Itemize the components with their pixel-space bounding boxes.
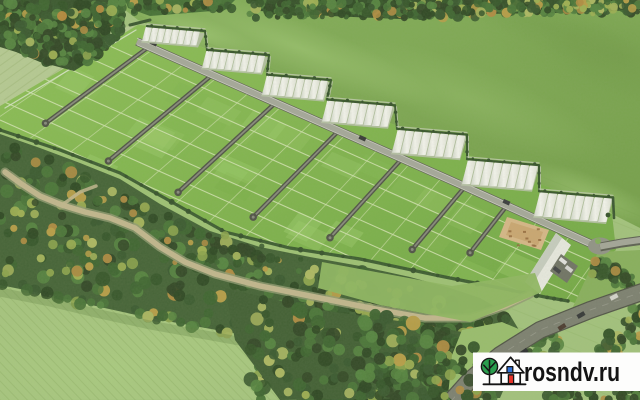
svg-text:rosndv.ru: rosndv.ru — [524, 357, 620, 387]
